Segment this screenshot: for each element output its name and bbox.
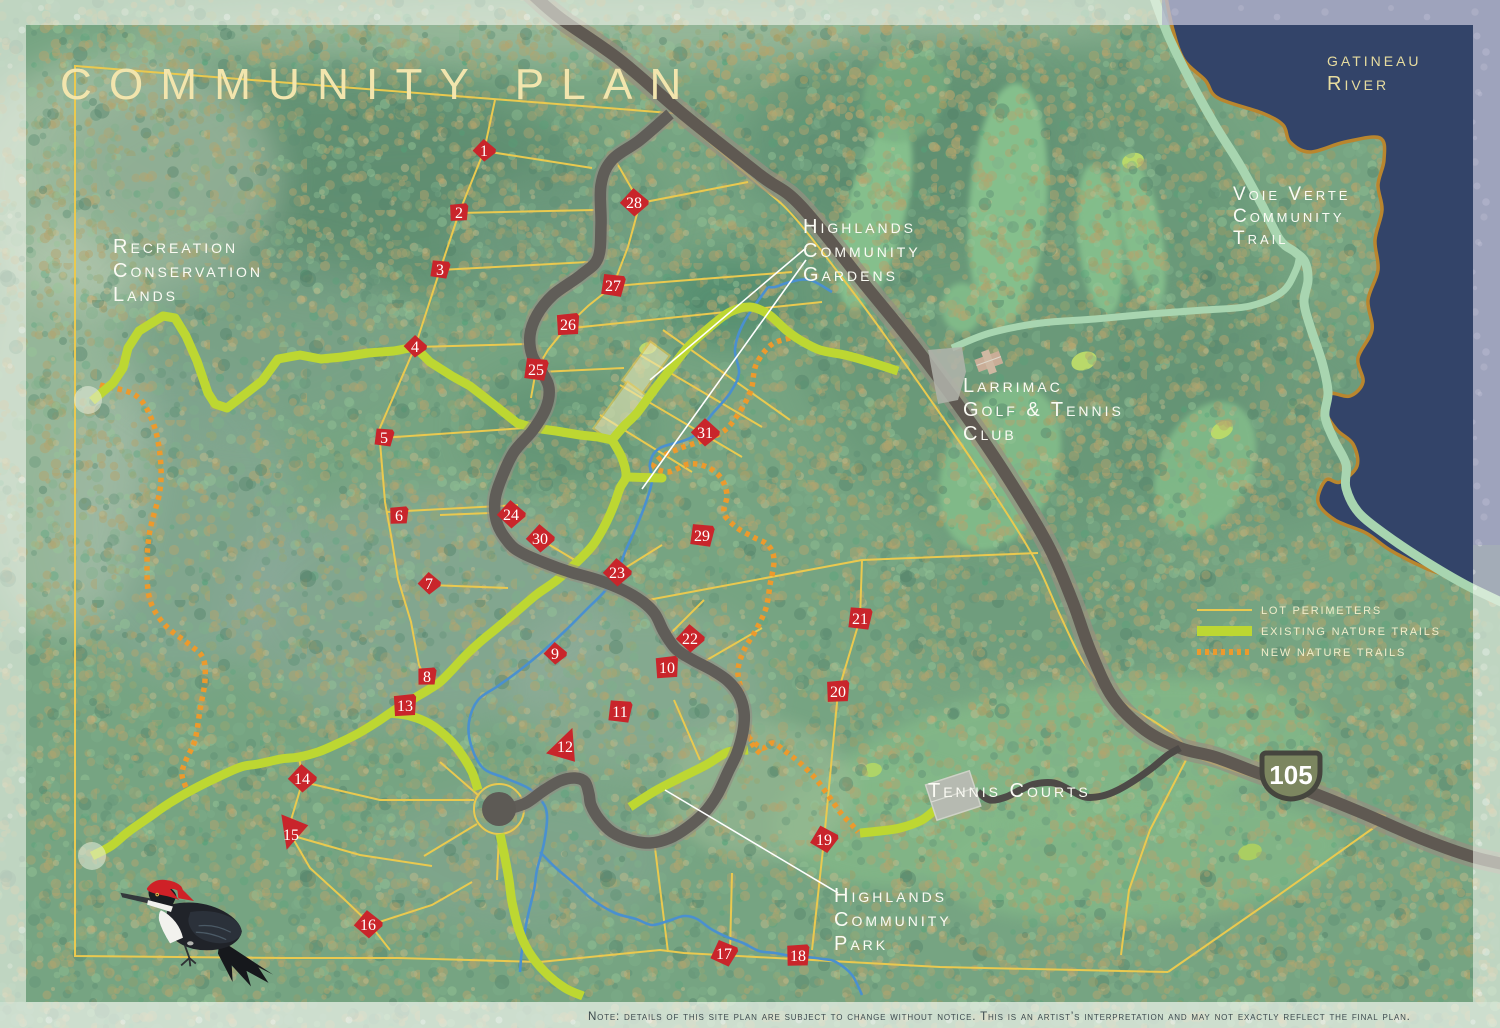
svg-text:17: 17 <box>716 946 732 963</box>
svg-text:4: 4 <box>411 339 419 356</box>
svg-text:21: 21 <box>852 611 868 628</box>
svg-text:29: 29 <box>694 528 710 545</box>
svg-text:28: 28 <box>626 195 642 212</box>
svg-text:12: 12 <box>557 739 573 756</box>
svg-text:15: 15 <box>283 827 299 844</box>
svg-text:20: 20 <box>830 684 846 701</box>
svg-text:22: 22 <box>682 631 698 648</box>
svg-text:COMMUNITY PLAN: COMMUNITY PLAN <box>60 60 698 109</box>
svg-text:11: 11 <box>612 704 627 721</box>
svg-text:7: 7 <box>425 576 433 593</box>
svg-text:2: 2 <box>455 205 463 222</box>
svg-text:6: 6 <box>395 508 403 525</box>
svg-text:18: 18 <box>790 948 806 965</box>
svg-text:13: 13 <box>397 698 413 715</box>
svg-text:5: 5 <box>380 430 388 447</box>
svg-text:14: 14 <box>294 771 310 788</box>
svg-text:23: 23 <box>609 565 625 582</box>
svg-text:LOT PERIMETERS: LOT PERIMETERS <box>1261 605 1382 617</box>
svg-text:3: 3 <box>436 262 444 279</box>
svg-text:105: 105 <box>1269 760 1312 790</box>
svg-text:24: 24 <box>503 507 519 524</box>
svg-text:10: 10 <box>659 660 675 677</box>
svg-text:1: 1 <box>480 143 488 160</box>
svg-text:Note: details of this site pla: Note: details of this site plan are subj… <box>588 1010 1411 1023</box>
svg-text:27: 27 <box>605 278 621 295</box>
svg-text:NEW NATURE TRAILS: NEW NATURE TRAILS <box>1261 647 1406 659</box>
svg-text:16: 16 <box>360 917 376 934</box>
svg-text:31: 31 <box>697 425 713 442</box>
svg-text:Tennis Courts: Tennis Courts <box>928 780 1091 802</box>
svg-text:25: 25 <box>528 362 544 379</box>
svg-text:EXISTING NATURE TRAILS: EXISTING NATURE TRAILS <box>1261 626 1441 638</box>
svg-text:26: 26 <box>560 317 576 334</box>
svg-text:8: 8 <box>423 669 431 686</box>
svg-text:19: 19 <box>816 832 832 849</box>
svg-text:9: 9 <box>551 646 559 663</box>
svg-text:30: 30 <box>532 531 548 548</box>
